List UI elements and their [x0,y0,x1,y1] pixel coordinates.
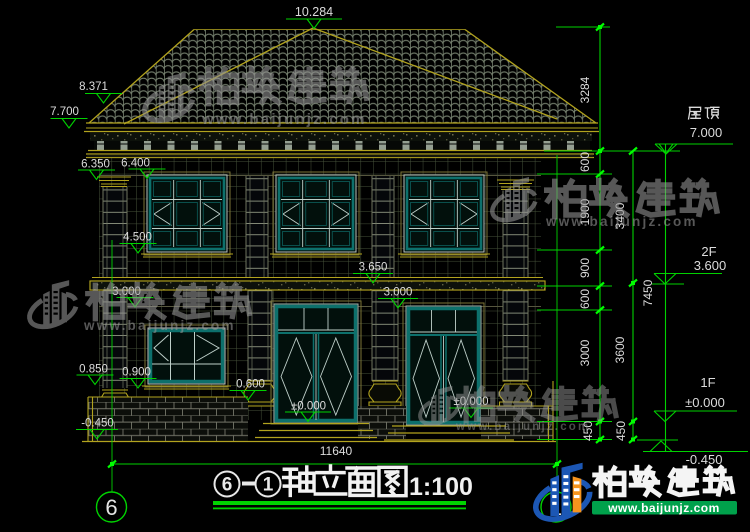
svg-text:0.600: 0.600 [236,379,265,391]
svg-text:3.650: 3.650 [359,262,388,274]
svg-text:6.400: 6.400 [121,158,150,170]
svg-text:3.600: 3.600 [694,258,727,273]
svg-text:±0.000: ±0.000 [291,401,326,413]
svg-text:2F: 2F [701,244,716,259]
svg-text:7450: 7450 [641,279,655,306]
svg-text:-0.450: -0.450 [686,452,723,467]
svg-text:±0.000: ±0.000 [685,395,725,410]
svg-text:www.baijunjz.com: www.baijunjz.com [607,501,720,515]
svg-text:3.000: 3.000 [384,287,413,299]
svg-text:3600: 3600 [613,336,627,363]
svg-text:0.850: 0.850 [79,364,108,376]
svg-text:10.284: 10.284 [295,5,333,19]
svg-text:6: 6 [105,495,117,520]
svg-text:450: 450 [614,421,628,441]
svg-text:www.baijunjz.com: www.baijunjz.com [201,111,367,128]
svg-text:3284: 3284 [578,76,592,103]
svg-text:0.900: 0.900 [122,367,151,379]
svg-text:6.350: 6.350 [81,159,110,171]
svg-text:-0.450: -0.450 [81,418,114,430]
svg-text:3000: 3000 [578,339,592,366]
svg-text:4.500: 4.500 [123,232,152,244]
svg-text:www.baijunjz.com: www.baijunjz.com [545,214,698,229]
svg-text:www.baijunjz.com: www.baijunjz.com [83,318,236,333]
svg-text:8.371: 8.371 [79,81,108,93]
svg-text:600: 600 [578,289,592,309]
svg-text:6: 6 [222,475,233,496]
svg-text:1: 1 [263,475,274,496]
svg-text:7.000: 7.000 [690,125,723,140]
svg-text:1:100: 1:100 [409,473,473,501]
svg-text:11640: 11640 [320,444,353,458]
svg-text:www.baijunjz.com: www.baijunjz.com [455,421,590,433]
svg-text:600: 600 [578,152,592,172]
svg-text:7.700: 7.700 [50,106,79,118]
svg-text:1F: 1F [700,375,715,390]
svg-text:900: 900 [578,258,592,278]
